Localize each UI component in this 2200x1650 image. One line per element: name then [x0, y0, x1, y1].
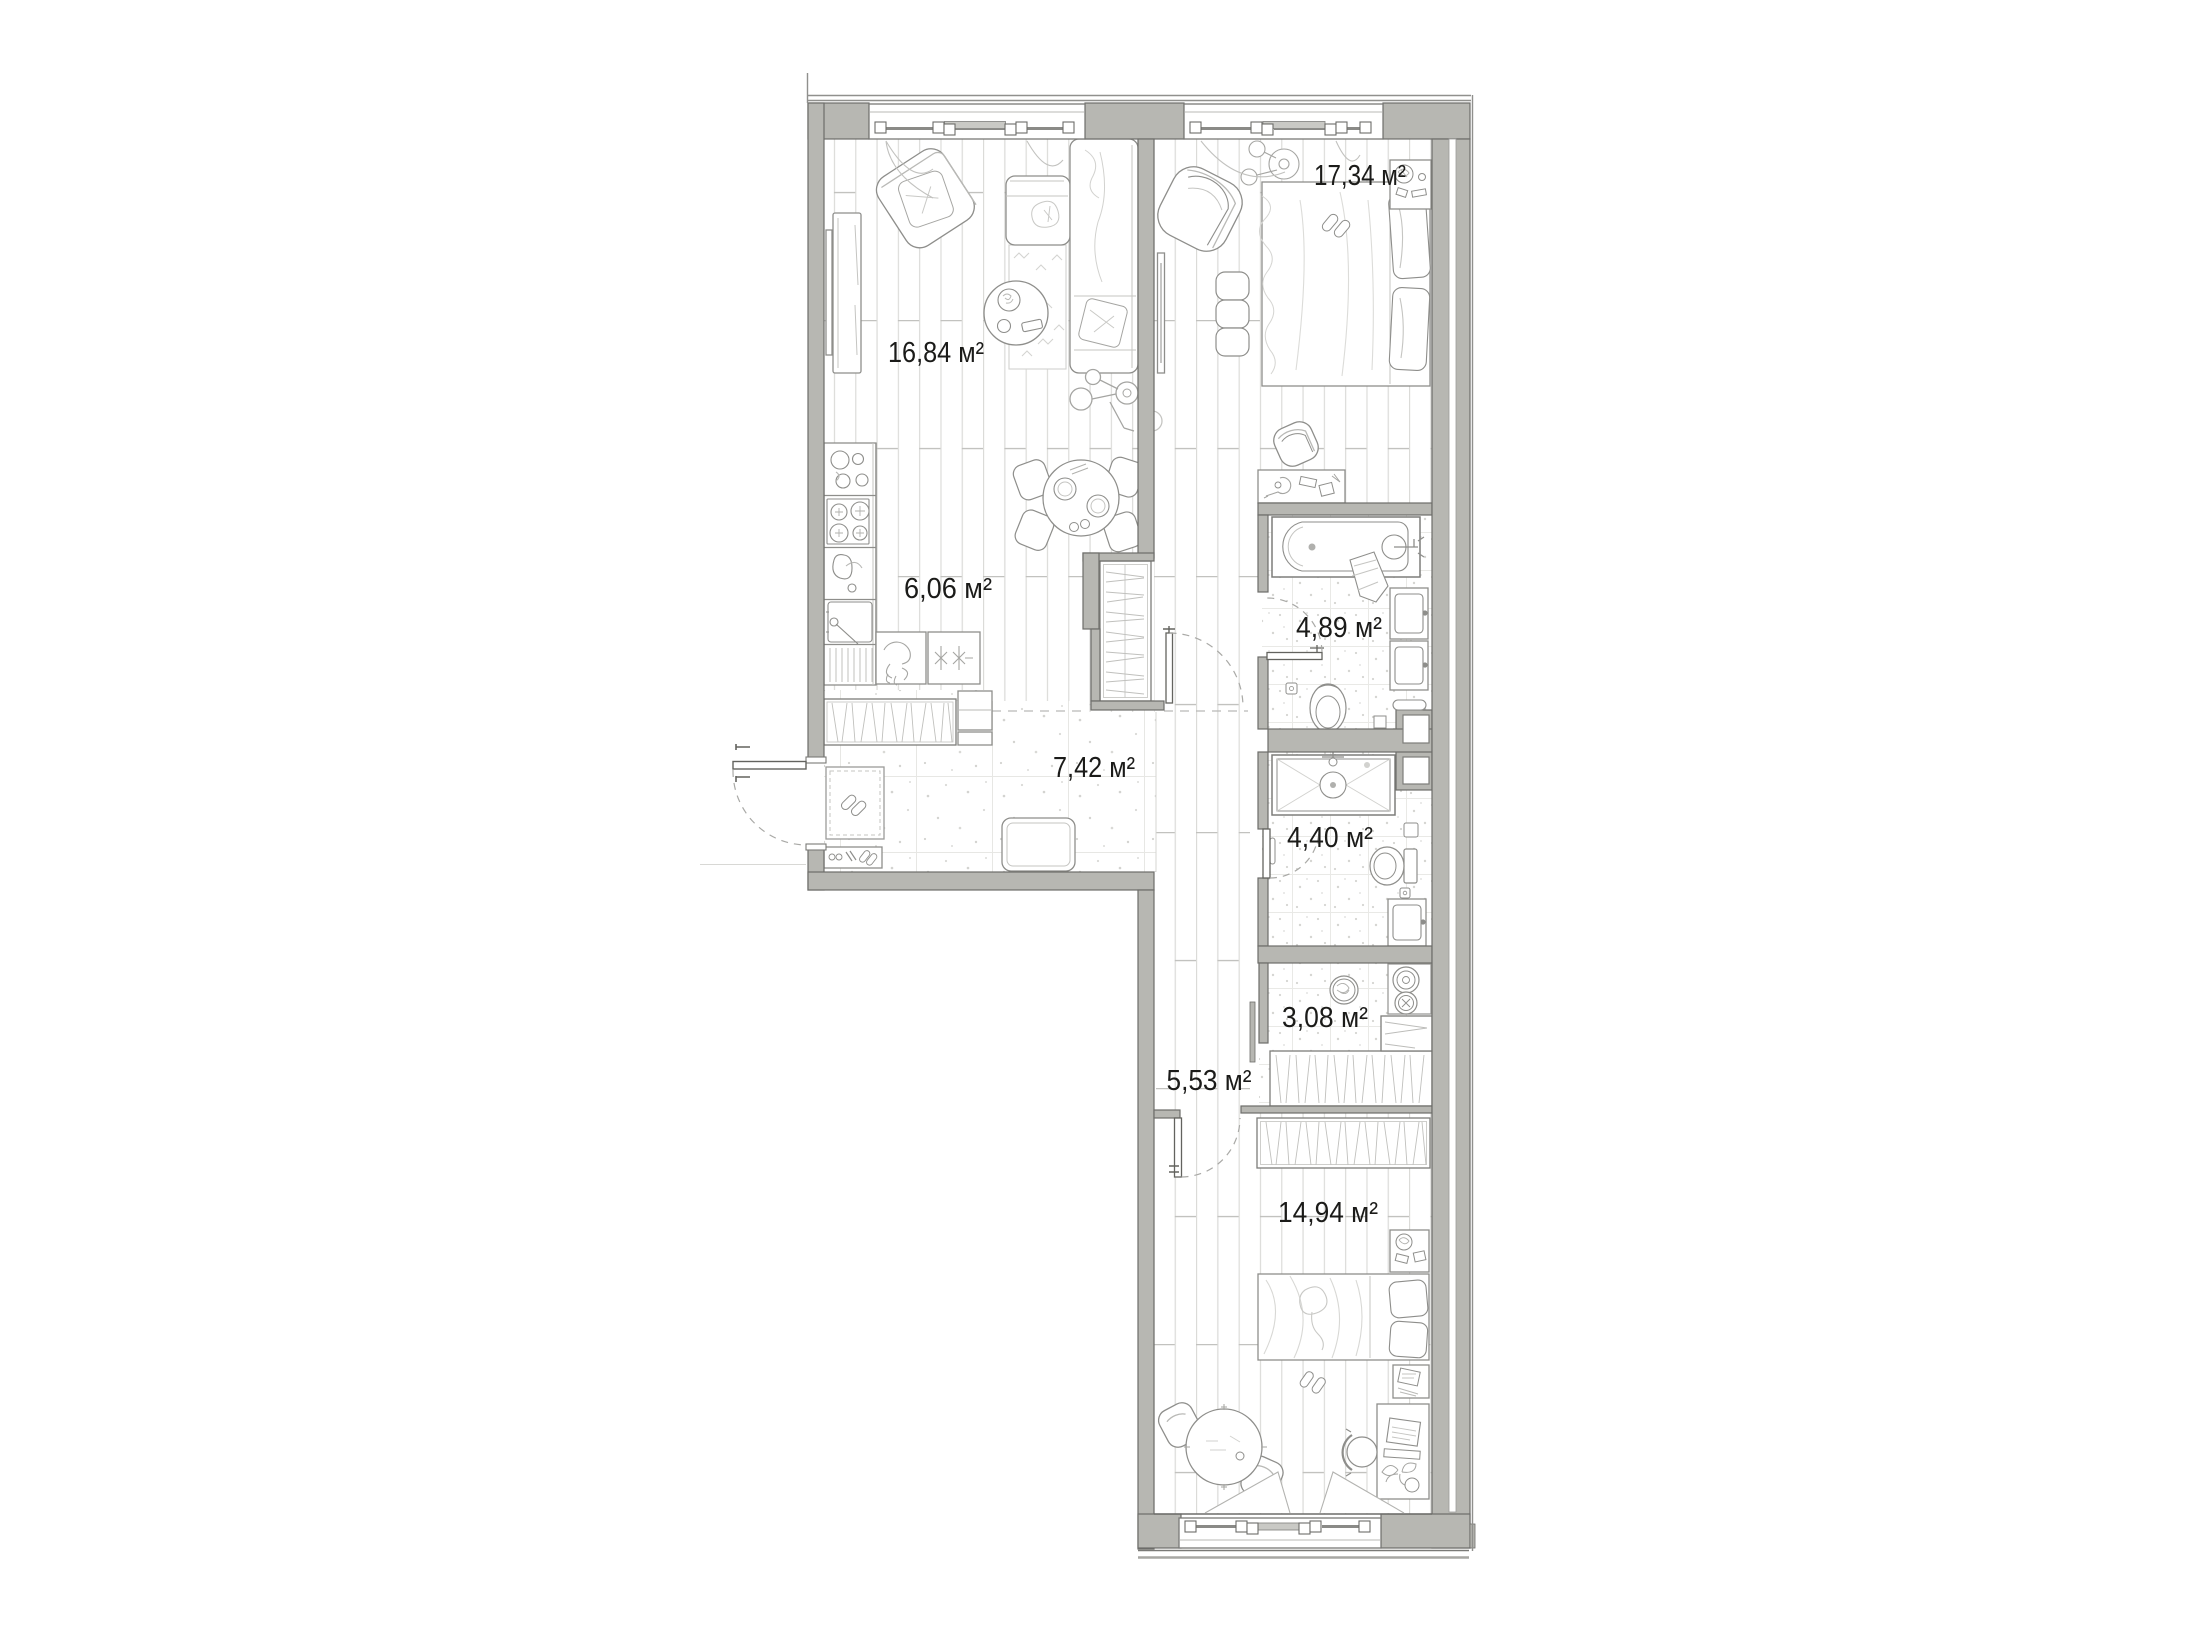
svg-text:14,94 м²: 14,94 м² — [1278, 1197, 1378, 1229]
svg-text:4,89 м²: 4,89 м² — [1296, 612, 1382, 644]
svg-text:16,84 м²: 16,84 м² — [888, 337, 984, 369]
svg-text:7,42 м²: 7,42 м² — [1053, 752, 1135, 784]
svg-text:6,06 м²: 6,06 м² — [904, 573, 992, 605]
svg-text:3,08 м²: 3,08 м² — [1282, 1002, 1368, 1034]
svg-text:5,53 м²: 5,53 м² — [1167, 1065, 1252, 1097]
svg-text:4,40 м²: 4,40 м² — [1287, 822, 1373, 854]
svg-text:17,34 м²: 17,34 м² — [1314, 160, 1406, 192]
